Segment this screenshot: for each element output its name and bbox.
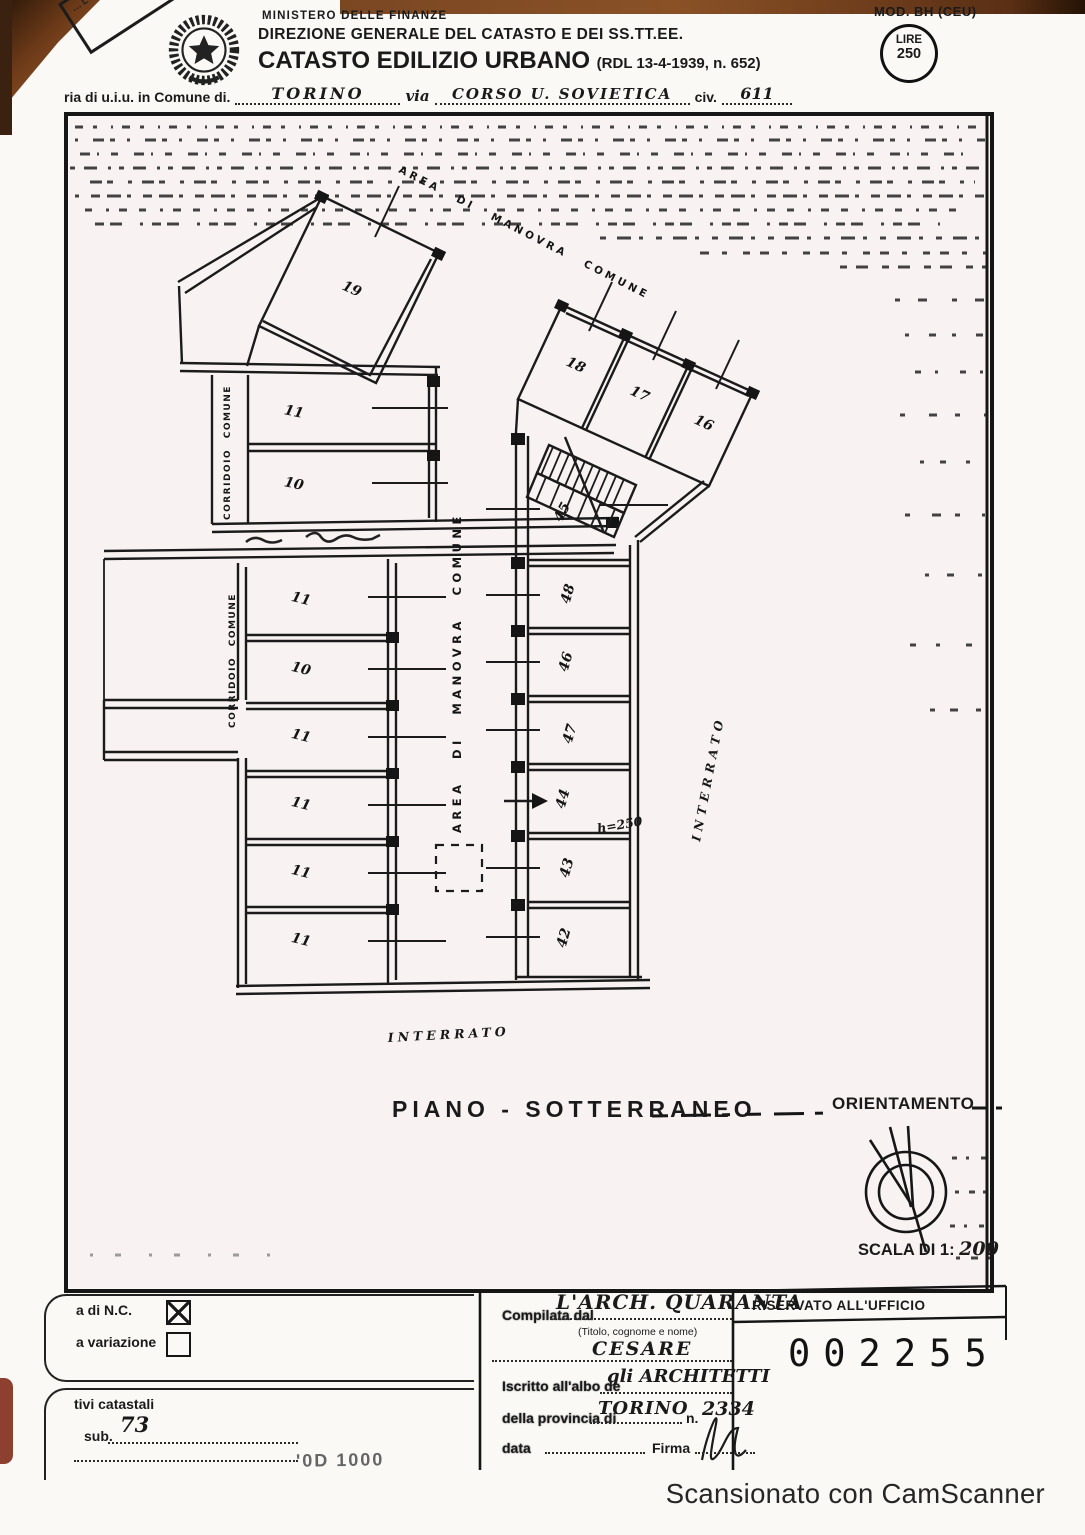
corridoio-upper-label: CORRIDOIO COMUNE xyxy=(223,385,233,520)
provincia-dotline xyxy=(590,1422,682,1424)
scanned-document-page: …LLARIO MINISTERO DELLE FINANZE DIREZION… xyxy=(0,0,1085,1535)
name2-dotline xyxy=(492,1360,732,1362)
catastali-label: tivi catastali xyxy=(74,1396,154,1412)
extra-dotline xyxy=(74,1460,298,1462)
sub-dotline xyxy=(108,1442,298,1444)
num-label: n. xyxy=(686,1410,698,1426)
protocol-number: 002255 xyxy=(788,1332,1000,1375)
variazione-checkbox xyxy=(166,1332,191,1357)
sub-value: 73 xyxy=(120,1412,149,1437)
name-hint: (Titolo, cognome e nome) xyxy=(578,1326,697,1338)
area-manovra-vertical-label: AREA DI MANOVRA COMUNE xyxy=(450,512,464,833)
firma-label: Firma xyxy=(652,1440,690,1456)
data-dotline xyxy=(545,1452,645,1454)
camscanner-watermark: Scansionato con CamScanner xyxy=(666,1478,1045,1510)
floor-caption: PIANO - SOTTERRANEO xyxy=(392,1096,757,1123)
firma-dotline xyxy=(695,1452,755,1454)
scale-text: SCALA DI 1: xyxy=(858,1241,955,1259)
scale-label: SCALA DI 1: 200 xyxy=(858,1238,999,1260)
riservato-header: RISERVATO ALL'UFFICIO xyxy=(752,1298,925,1313)
provincia-value: TORINO xyxy=(598,1398,689,1419)
name-dotline xyxy=(550,1318,732,1320)
name-value2: CESARE xyxy=(592,1338,692,1360)
nc-label: a di N.C. xyxy=(76,1302,132,1318)
variazione-label: a variazione xyxy=(76,1334,156,1350)
corridoio-lower-label: CORRIDOIO COMUNE xyxy=(228,593,238,728)
albo-value: gli ARCHITETTI xyxy=(607,1366,770,1387)
nc-checkbox xyxy=(166,1300,191,1325)
num-value: 2334 xyxy=(702,1398,755,1420)
albo-dotline xyxy=(600,1392,732,1394)
print-code: '0D 1000 xyxy=(296,1449,385,1472)
data-label: data xyxy=(502,1440,531,1456)
scale-value: 200 xyxy=(959,1238,999,1260)
orientation-label: ORIENTAMENTO xyxy=(832,1094,974,1114)
